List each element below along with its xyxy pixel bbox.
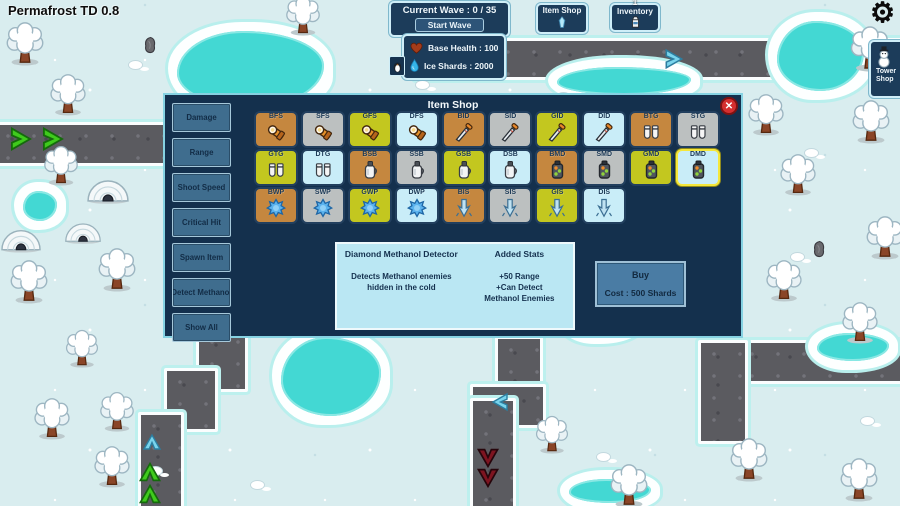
- gloves-icon: [312, 159, 334, 181]
- penguin-icon: [393, 60, 402, 73]
- shop-item-gsb[interactable]: GSB: [442, 149, 486, 186]
- shop-item-gfs[interactable]: GFS: [348, 111, 392, 148]
- spike-icon: [499, 197, 521, 219]
- item-label: DFS: [410, 113, 424, 121]
- shop-item-smd[interactable]: SMD: [582, 149, 626, 186]
- shop-item-dfs[interactable]: DFS: [395, 111, 439, 148]
- jug-icon: [406, 159, 428, 181]
- ice-shards-label: Ice Shards : 2000: [424, 61, 493, 71]
- tree-icon: [96, 390, 138, 432]
- tree-icon: [532, 414, 572, 454]
- dagger-icon: [499, 121, 521, 143]
- game-title: Permafrost TD 0.8: [8, 3, 119, 18]
- detector-icon: [687, 159, 709, 181]
- gloves-icon: [640, 121, 662, 143]
- filter-damage[interactable]: Damage: [172, 103, 231, 132]
- spike-icon: [546, 197, 568, 219]
- item-label: BFS: [269, 113, 283, 121]
- shop-item-sis[interactable]: SIS: [488, 187, 532, 224]
- snow-patch: [596, 452, 611, 462]
- snowman-icon: [876, 46, 892, 68]
- shop-item-sid[interactable]: SID: [488, 111, 532, 148]
- rock-icon: [143, 36, 158, 54]
- item-label: GIS: [551, 189, 563, 197]
- spike-icon: [453, 197, 475, 219]
- item-label: SSB: [409, 151, 423, 159]
- added-stats-heading: Added Stats: [495, 249, 545, 259]
- dagger-icon: [546, 121, 568, 143]
- splat-icon: [359, 197, 381, 219]
- resources-panel: Base Health : 100 Ice Shards : 2000: [402, 34, 506, 80]
- jug-icon: [359, 159, 381, 181]
- item-label: GTG: [268, 151, 283, 159]
- shop-item-bis[interactable]: BIS: [442, 187, 486, 224]
- green-arrow-icon: [138, 460, 162, 484]
- flashlight-icon: [312, 121, 334, 143]
- splat-icon: [265, 197, 287, 219]
- splat-icon: [406, 197, 428, 219]
- filter-show-all[interactable]: Show All: [172, 313, 231, 342]
- ice-pond: [14, 182, 66, 230]
- item-label: DIS: [598, 189, 610, 197]
- filter-shoot-speed[interactable]: Shoot Speed: [172, 173, 231, 202]
- inventory-count-badge: 1: [633, 0, 637, 7]
- filter-range[interactable]: Range: [172, 138, 231, 167]
- item-label: BID: [458, 113, 470, 121]
- dialog-title: Item Shop: [165, 99, 741, 111]
- snow-patch: [128, 60, 143, 70]
- green-arrow-icon: [40, 126, 66, 152]
- wave-label: Current Wave : 0 / 35: [403, 5, 497, 16]
- dagger-icon: [453, 121, 475, 143]
- item-label: SMD: [596, 151, 612, 159]
- tree-icon: [744, 92, 788, 136]
- item-label: BSB: [362, 151, 377, 159]
- flashlight-icon: [406, 121, 428, 143]
- green-arrow-icon: [138, 482, 162, 506]
- filter-detect-methanol[interactable]: Detect Methanol: [172, 278, 231, 307]
- snow-patch: [415, 80, 430, 90]
- shop-item-bsb[interactable]: BSB: [348, 149, 392, 186]
- shop-item-swp[interactable]: SWP: [301, 187, 345, 224]
- filter-critical-hit[interactable]: Critical Hit: [172, 208, 231, 237]
- igloo-icon: [86, 174, 130, 204]
- buy-button[interactable]: Buy Cost : 500 Shards: [595, 261, 686, 307]
- shop-item-bmd[interactable]: BMD: [535, 149, 579, 186]
- item-label: BIS: [458, 189, 470, 197]
- tower-shop-label: Tower Shop: [876, 68, 900, 84]
- teal-arrow-icon: [490, 392, 510, 412]
- tree-icon: [2, 20, 48, 66]
- snow-patch: [250, 480, 265, 490]
- red-arrow-icon: [476, 466, 500, 490]
- path-tile: [698, 340, 748, 444]
- detector-icon: [640, 159, 662, 181]
- tower-shop-button[interactable]: Tower Shop: [869, 40, 900, 98]
- shop-item-gtg[interactable]: GTG: [254, 149, 298, 186]
- ice-pond: [272, 328, 390, 425]
- item-label: SWP: [315, 189, 331, 197]
- gloves-icon: [265, 159, 287, 181]
- item-label: SIS: [505, 189, 516, 197]
- shop-item-dtg[interactable]: DTG: [301, 149, 345, 186]
- heart-icon: [410, 42, 423, 54]
- teal-arrow-icon: [142, 432, 162, 452]
- splat-icon: [312, 197, 334, 219]
- shop-item-dsb[interactable]: DSB: [488, 149, 532, 186]
- tree-icon: [6, 258, 52, 304]
- start-wave-button[interactable]: Start Wave: [415, 18, 485, 32]
- shop-item-gwp[interactable]: GWP: [348, 187, 392, 224]
- item-name: Diamond Methanol Detector: [345, 249, 458, 259]
- shop-item-gis[interactable]: GIS: [535, 187, 579, 224]
- item-label: DTG: [316, 151, 331, 159]
- item-label: SFS: [316, 113, 330, 121]
- item-label: BWP: [268, 189, 284, 197]
- item-label: BTG: [644, 113, 659, 121]
- milk-carton-icon: [631, 16, 640, 28]
- tree-icon: [836, 456, 882, 502]
- item-detail-panel: Diamond Methanol Detector Detects Methan…: [335, 242, 575, 330]
- dagger-icon: [593, 121, 615, 143]
- item-label: GWP: [361, 189, 378, 197]
- igloo-icon: [0, 224, 42, 253]
- detector-icon: [546, 159, 568, 181]
- tree-icon: [94, 246, 140, 292]
- tree-icon: [762, 258, 806, 302]
- jug-icon: [499, 159, 521, 181]
- item-label: DWP: [409, 189, 425, 197]
- shop-item-grid: BFSSFSGFSDFSBIDSIDGIDDIDBTGSTGGTGDTGBSBS…: [254, 111, 720, 224]
- item-label: GMD: [643, 151, 659, 159]
- tree-icon: [46, 72, 90, 116]
- item-shop-dialog: Item Shop ✕ DamageRangeShoot SpeedCritic…: [163, 93, 743, 338]
- buy-cost-label: Cost : 500 Shards: [605, 288, 677, 298]
- flashlight-icon: [359, 121, 381, 143]
- green-arrow-icon: [8, 126, 34, 152]
- shop-item-btg[interactable]: BTG: [629, 111, 673, 148]
- tree-icon: [606, 462, 652, 506]
- close-icon[interactable]: ✕: [720, 97, 738, 115]
- shop-item-bid[interactable]: BID: [442, 111, 486, 148]
- shop-item-ssb[interactable]: SSB: [395, 149, 439, 186]
- detector-icon: [593, 159, 615, 181]
- item-shop-button[interactable]: Item Shop: [536, 3, 588, 34]
- inventory-label: Inventory: [617, 7, 653, 16]
- item-shop-label: Item Shop: [543, 7, 582, 16]
- item-label: DSB: [503, 151, 518, 159]
- item-label: SID: [505, 113, 517, 121]
- wave-panel: Current Wave : 0 / 35 Start Wave: [389, 1, 510, 37]
- shop-item-did[interactable]: DID: [582, 111, 626, 148]
- shop-item-dwp[interactable]: DWP: [395, 187, 439, 224]
- item-label: GID: [551, 113, 563, 121]
- ice-shard-icon: [410, 59, 419, 72]
- tree-icon: [838, 300, 882, 344]
- item-label: BMD: [549, 151, 565, 159]
- inventory-button[interactable]: 1 Inventory: [610, 3, 660, 32]
- tree-icon: [62, 328, 102, 368]
- filter-spawn-item[interactable]: Spawn Item: [172, 243, 231, 272]
- teal-arrow-icon: [663, 48, 685, 70]
- jug-icon: [453, 159, 475, 181]
- shop-item-gmd[interactable]: GMD: [629, 149, 673, 186]
- item-label: DMD: [690, 151, 706, 159]
- tree-icon: [90, 444, 134, 488]
- spike-icon: [593, 197, 615, 219]
- shop-item-bfs[interactable]: BFS: [254, 111, 298, 148]
- shop-item-sfs[interactable]: SFS: [301, 111, 345, 148]
- settings-gear-icon[interactable]: ⚙: [870, 0, 895, 29]
- shop-item-dmd[interactable]: DMD: [676, 149, 720, 186]
- tree-icon: [848, 98, 894, 144]
- ice-shard-icon: [557, 16, 567, 29]
- item-description: Detects Methanol enemies hidden in the c…: [351, 271, 451, 293]
- item-label: STG: [691, 113, 705, 121]
- game-screen: Permafrost TD 0.8 Current Wave : 0 / 35 …: [0, 0, 900, 506]
- tree-icon: [282, 0, 324, 36]
- base-health-label: Base Health : 100: [428, 43, 498, 53]
- item-label: DID: [598, 113, 610, 121]
- shop-item-gid[interactable]: GID: [535, 111, 579, 148]
- tree-icon: [726, 436, 772, 482]
- gloves-icon: [687, 121, 709, 143]
- item-label: GFS: [363, 113, 377, 121]
- buy-label: Buy: [632, 270, 649, 280]
- item-label: GSB: [456, 151, 471, 159]
- penguin-button[interactable]: [389, 56, 405, 76]
- shop-item-stg[interactable]: STG: [676, 111, 720, 148]
- snow-patch: [860, 416, 875, 426]
- igloo-icon: [64, 218, 102, 244]
- item-stats: +50 Range +Can Detect Methanol Enemies: [484, 271, 554, 305]
- rock-icon: [812, 240, 827, 258]
- shop-item-dis[interactable]: DIS: [582, 187, 626, 224]
- tree-icon: [776, 152, 820, 196]
- flashlight-icon: [265, 121, 287, 143]
- shop-item-bwp[interactable]: BWP: [254, 187, 298, 224]
- tree-icon: [30, 396, 74, 440]
- tree-icon: [862, 214, 900, 260]
- shop-filter-list: DamageRangeShoot SpeedCritical HitSpawn …: [172, 103, 231, 342]
